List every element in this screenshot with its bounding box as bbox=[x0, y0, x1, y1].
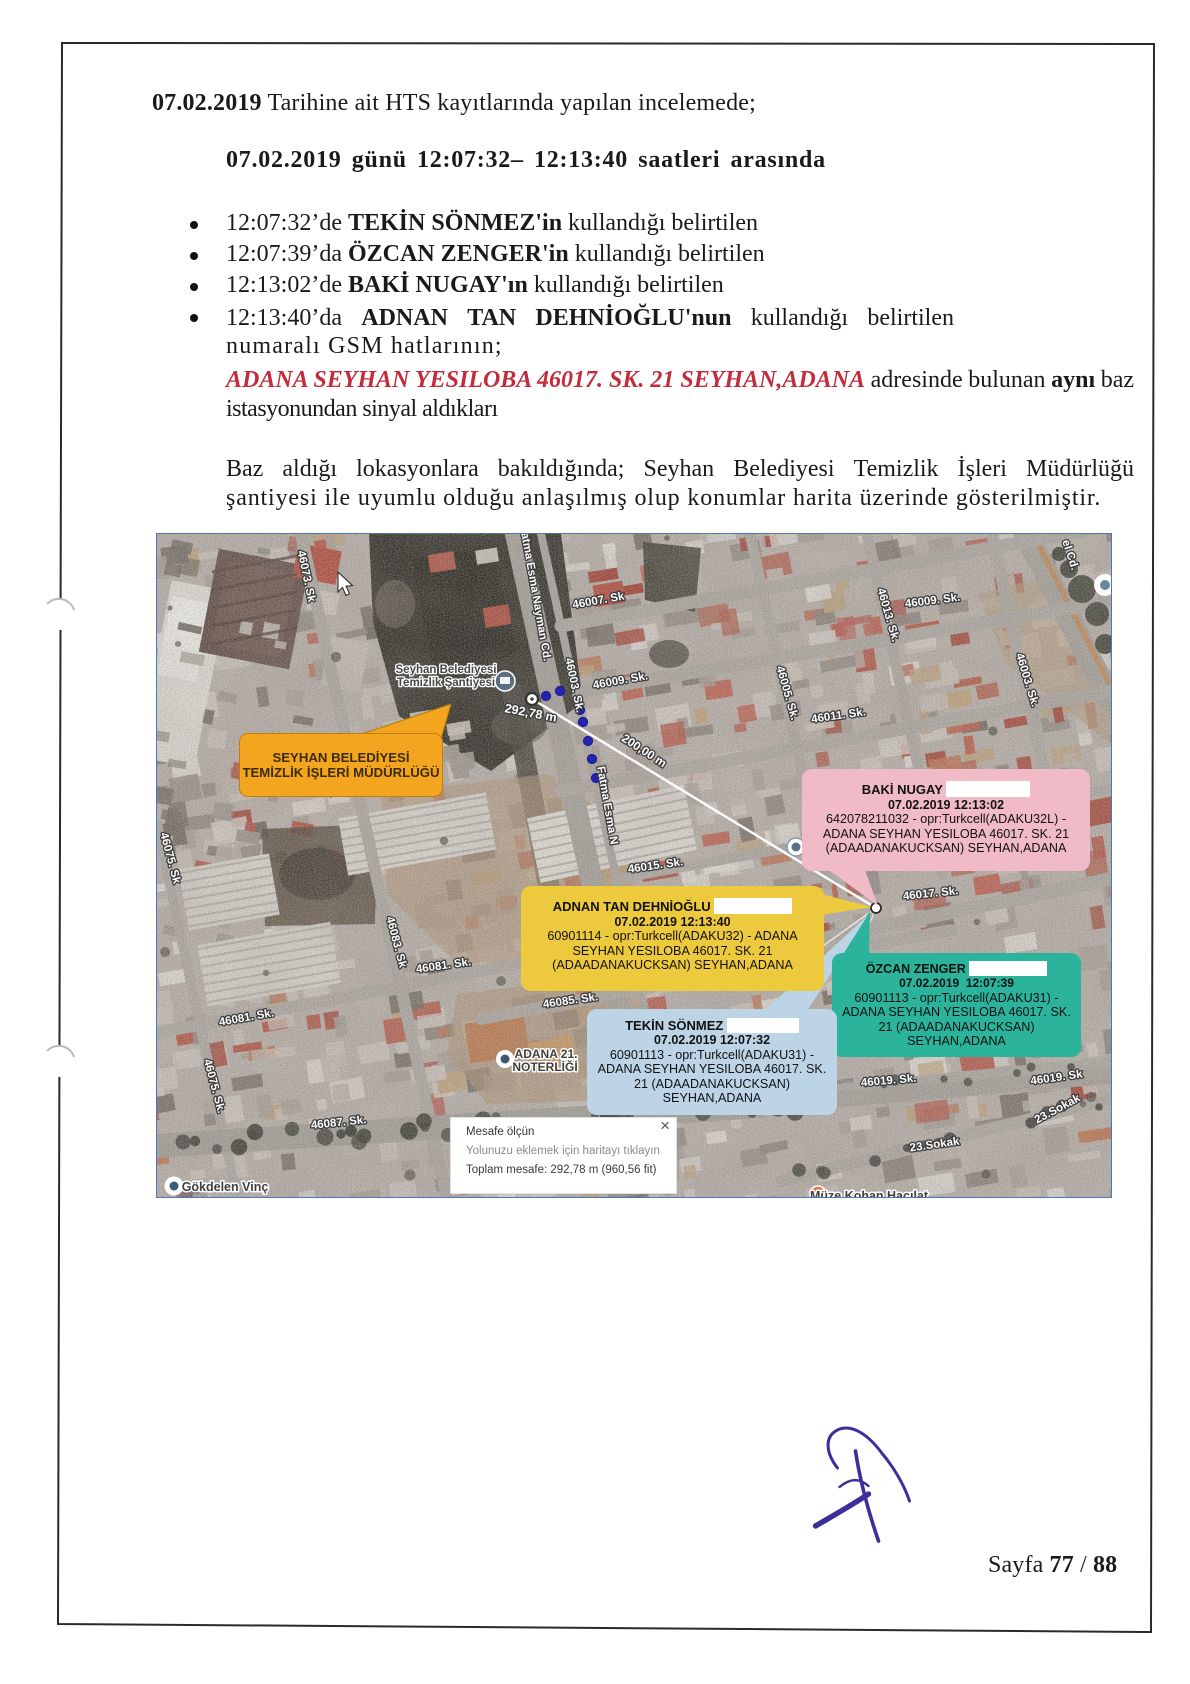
svg-text:Müze Kohan Hacılat: Müze Kohan Hacılat bbox=[810, 1189, 929, 1197]
svg-text:Gökdelen Vinç: Gökdelen Vinç bbox=[182, 1180, 269, 1194]
svg-text:ADANA 21.: ADANA 21. bbox=[515, 1047, 578, 1061]
svg-text:Seyhan Belediyesi: Seyhan Belediyesi bbox=[396, 664, 497, 676]
svg-text:NOTERLİĞİ: NOTERLİĞİ bbox=[512, 1059, 577, 1074]
svg-text:Temizlik Şantiyesi: Temizlik Şantiyesi bbox=[397, 677, 495, 689]
